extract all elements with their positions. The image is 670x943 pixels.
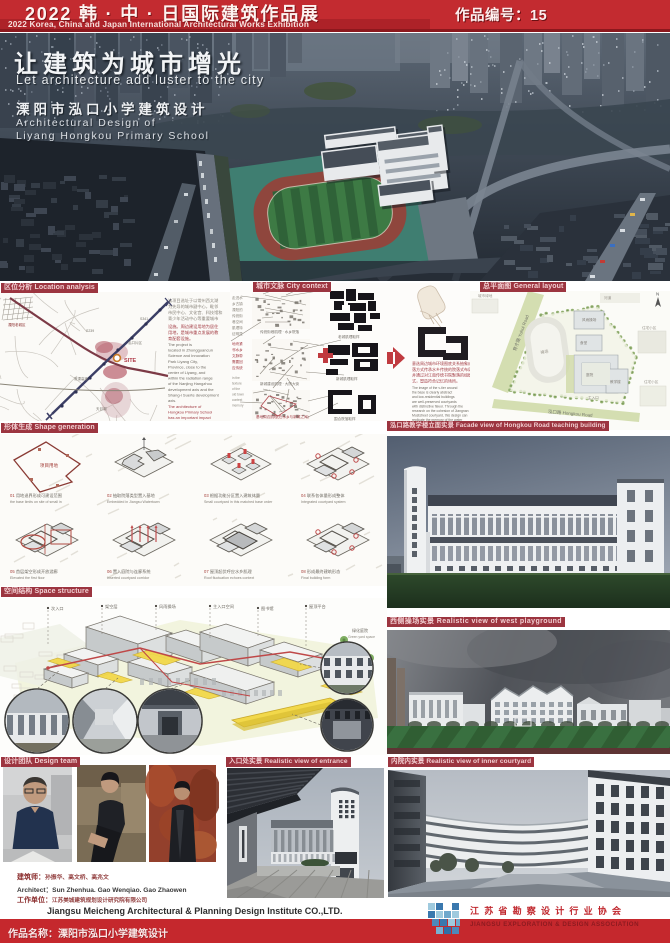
svg-text:04 联系各体量形成整体: 04 联系各体量形成整体 xyxy=(301,492,345,499)
svg-text:老城肌理取样: 老城肌理取样 xyxy=(338,334,360,339)
svg-text:07 屋顶起伏呼应水乡肌理: 07 屋顶起伏呼应水乡肌理 xyxy=(204,568,253,575)
svg-text:项目用地: 项目用地 xyxy=(40,462,58,469)
svg-text:of the: of the xyxy=(232,387,240,391)
svg-text:育配套设施。: 育配套设施。 xyxy=(168,335,193,342)
svg-text:食堂: 食堂 xyxy=(580,340,588,345)
svg-text:and low-residential buildings: and low-residential buildings xyxy=(412,395,455,399)
svg-text:风雨操场: 风雨操场 xyxy=(159,603,176,610)
svg-text:需要回: 需要回 xyxy=(232,359,243,364)
svg-text:context: context xyxy=(232,398,242,402)
svg-text:N: N xyxy=(656,292,659,297)
svg-text:围合院落取样: 围合院落取样 xyxy=(334,416,356,421)
svg-text:development axis and the: development axis and the xyxy=(168,387,214,392)
svg-text:设施。周边建设用地为居住: 设施。周边建设用地为居住 xyxy=(168,323,219,330)
svg-text:肌理特: 肌理特 xyxy=(232,325,243,330)
svg-text:axis.: axis. xyxy=(168,398,176,403)
svg-text:texture: texture xyxy=(232,382,242,386)
svg-text:Science and Innovation: Science and Innovation xyxy=(168,353,210,358)
svg-text:式，塑造符合记忆的场所。: 式，塑造符合记忆的场所。 xyxy=(412,377,460,383)
svg-text:落方式传承水乡传统的院落式布局，: 落方式传承水乡传统的院落式布局， xyxy=(412,366,470,372)
svg-text:The architecture of: The architecture of xyxy=(168,404,202,409)
svg-text:常溧高速: 常溧高速 xyxy=(74,376,88,381)
svg-text:06 置入庭院与连廊系统: 06 置入庭院与连廊系统 xyxy=(107,568,151,575)
svg-text:图书馆: 图书馆 xyxy=(261,605,274,612)
svg-text:溧阳的: 溧阳的 xyxy=(232,307,243,312)
svg-text:地块紧: 地块紧 xyxy=(232,341,243,346)
svg-text:架空层: 架空层 xyxy=(105,603,118,610)
svg-text:住宅小区: 住宅小区 xyxy=(642,325,657,330)
svg-text:传统街巷肌理 · 水乡院落: 传统街巷肌理 · 水乡院落 xyxy=(260,329,300,334)
svg-text:has an important impact: has an important impact xyxy=(168,415,212,420)
svg-text:the base limits on site of sma: the base limits on site of small in xyxy=(10,500,62,504)
svg-text:with distinctive flavor. Throu: with distinctive flavor. Through the xyxy=(412,404,463,408)
svg-text:巷空间: 巷空间 xyxy=(232,319,243,324)
svg-text:该项目选址于以常州西太湖: 该项目选址于以常州西太湖 xyxy=(168,297,218,304)
svg-text:传统街: 传统街 xyxy=(232,313,243,318)
svg-text:05 首层架空形成开放游廊: 05 首层架空形成开放游廊 xyxy=(10,568,58,575)
svg-text:within the radiation range: within the radiation range xyxy=(168,376,213,381)
svg-text:文脉带: 文脉带 xyxy=(232,353,243,358)
svg-text:新城肌理取样: 新城肌理取样 xyxy=(336,376,358,381)
svg-text:溧阳老城区: 溧阳老城区 xyxy=(8,322,26,327)
svg-text:The image of the v-tier around: The image of the v-tier around xyxy=(412,386,458,390)
svg-text:research on the cohesion of Ji: research on the cohesion of Jiangnan xyxy=(412,409,469,413)
svg-text:邻水乡: 邻水乡 xyxy=(232,347,243,352)
svg-text:The project is: The project is xyxy=(168,342,192,347)
svg-text:主入口空间: 主入口空间 xyxy=(213,603,234,610)
svg-text:S341: S341 xyxy=(140,317,148,321)
svg-text:庭院: 庭院 xyxy=(586,372,594,377)
svg-text:Inserted courtyard corridor: Inserted courtyard corridor xyxy=(107,576,150,580)
svg-text:天目湖: 天目湖 xyxy=(96,406,107,411)
svg-text:Muststreet courtyard, this des: Muststreet courtyard, this design can xyxy=(412,414,468,418)
svg-text:城市绿地: 城市绿地 xyxy=(478,293,493,298)
svg-text:征明显: 征明显 xyxy=(232,331,243,336)
svg-text:SITE: SITE xyxy=(124,358,137,364)
svg-text:乡古镇: 乡古镇 xyxy=(232,301,243,306)
svg-text:意选周边城市环境图底关系抽象成聚: 意选周边城市环境图底关系抽象成聚 xyxy=(412,360,470,366)
svg-text:01 用地退界形成可建设范围: 01 用地退界形成可建设范围 xyxy=(10,492,62,499)
svg-text:02 抽取院落类型置入基地: 02 抽取院落类型置入基地 xyxy=(107,492,156,499)
svg-text:Integrated courtyard system: Integrated courtyard system xyxy=(301,500,346,504)
svg-text:操场: 操场 xyxy=(540,348,549,355)
svg-text:市民中心、文化宫、科技馆和: 市民中心、文化宫、科技馆和 xyxy=(168,309,222,316)
svg-text:Small courtyard in this matche: Small courtyard in this matched base ord… xyxy=(204,500,273,504)
svg-text:Roof fluctuation echoes contex: Roof fluctuation echoes context xyxy=(204,576,254,580)
svg-text:03 根据功能分区置入建筑体量: 03 根据功能分区置入建筑体量 xyxy=(204,492,260,499)
svg-text:屋顶平台: 屋顶平台 xyxy=(309,603,326,610)
svg-text:为先导的城市副中心，毗邻: 为先导的城市副中心，毗邻 xyxy=(168,303,218,310)
svg-text:memory: memory xyxy=(232,404,244,408)
svg-text:Green yard space: Green yard space xyxy=(348,635,375,639)
svg-text:located in Zhongguancun: located in Zhongguancun xyxy=(168,348,213,353)
svg-text:Hongkou Primary School: Hongkou Primary School xyxy=(168,410,212,415)
svg-text:应传统: 应传统 xyxy=(232,365,243,370)
svg-text:Province, close to the: Province, close to the xyxy=(168,364,207,369)
svg-text:of the Nanjing Hangzhou: of the Nanjing Hangzhou xyxy=(168,381,212,386)
svg-text:泓口片区: 泓口片区 xyxy=(128,340,142,345)
svg-text:住宅小区: 住宅小区 xyxy=(644,379,659,384)
svg-text:河道: 河道 xyxy=(604,295,612,300)
svg-text:次入口: 次入口 xyxy=(51,605,64,612)
svg-text:in the: in the xyxy=(232,376,240,380)
svg-text:Final building form: Final building form xyxy=(301,576,330,580)
svg-text:青少年活动中心等重要城市: 青少年活动中心等重要城市 xyxy=(168,315,218,322)
svg-text:主入口: 主入口 xyxy=(588,395,599,400)
svg-text:基地周边肌理(在水乡与新城之间): 基地周边肌理(在水乡与新城之间) xyxy=(256,414,309,419)
svg-text:教学楼: 教学楼 xyxy=(610,379,621,384)
svg-text:Elevated the first floor: Elevated the first floor xyxy=(10,576,46,580)
svg-text:are well-preserved courtyards: are well-preserved courtyards xyxy=(412,400,457,404)
svg-text:新城建设肌理 · 大院大街: 新城建设肌理 · 大院大街 xyxy=(260,381,300,386)
svg-text:Park Liyang City,: Park Liyang City, xyxy=(168,359,198,364)
svg-text:绿化庭院: 绿化庭院 xyxy=(352,627,368,633)
svg-text:08 形成最终建筑形态: 08 形成最终建筑形态 xyxy=(301,568,340,575)
svg-text:Embedded in Jiangsu Watertown: Embedded in Jiangsu Watertown xyxy=(107,500,160,504)
svg-text:S239: S239 xyxy=(86,329,94,333)
svg-text:风雨操场: 风雨操场 xyxy=(582,317,597,322)
svg-text:走进水: 走进水 xyxy=(232,295,243,300)
svg-text:the base is clearly abstract: the base is clearly abstract xyxy=(412,391,452,395)
svg-text:用地，是城市重点发展的教: 用地，是城市重点发展的教 xyxy=(168,329,219,336)
svg-text:center of Liyang, and: center of Liyang, and xyxy=(168,370,205,375)
svg-text:并通过对江南传统书院聚落的组织方: 并通过对江南传统书院聚落的组织方 xyxy=(412,372,470,378)
svg-text:old town: old town xyxy=(232,393,244,397)
svg-text:Shang-i Suerte development: Shang-i Suerte development xyxy=(168,392,220,397)
